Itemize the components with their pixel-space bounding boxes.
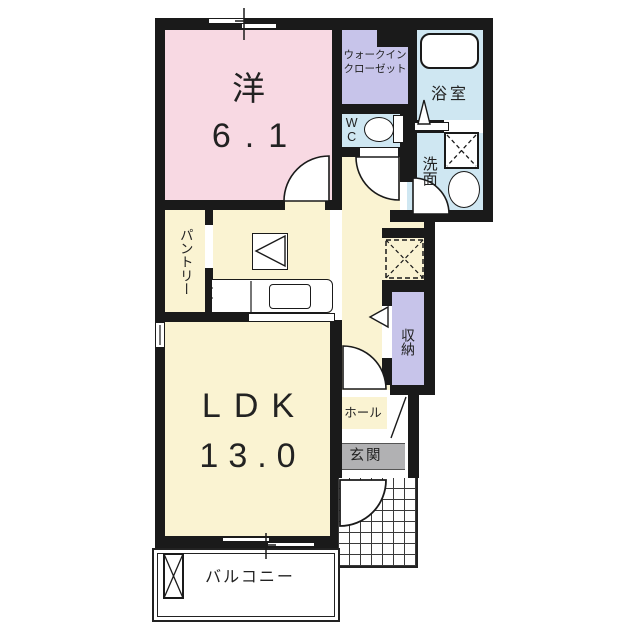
window-left	[156, 323, 164, 347]
wall-western-bottom	[155, 200, 285, 210]
ldk-size: 13.0	[170, 436, 335, 478]
bath-entry-sill	[414, 122, 449, 131]
storage-door-opening	[382, 306, 392, 358]
washroom-doorway	[407, 182, 417, 210]
window-top-rail-left	[208, 18, 245, 24]
bath-label: 浴室	[417, 84, 483, 106]
kitchen-counter-edge	[248, 313, 335, 322]
wall-western-bottom-stub	[325, 200, 342, 210]
wall-washroom-bottom	[390, 210, 493, 222]
window-balcony-rail-left	[222, 537, 270, 542]
western-room-size: 6.1	[173, 116, 340, 158]
toilet-door-opening	[360, 148, 398, 157]
walk-in-closet-label-line2: クローゼット	[342, 62, 408, 76]
window-balcony-rail-right	[267, 542, 315, 547]
balcony-label: バルコニー	[190, 567, 310, 589]
wall-bath-left	[408, 30, 417, 104]
wall-pantry-bottom	[155, 312, 213, 322]
floor-plan: 洋 6.1 ウォークイン クローゼット 浴室 WC 洗面 パントリー LDK 1…	[0, 0, 640, 640]
washroom-label: 洗面	[419, 145, 439, 197]
entrance-porch-tiles	[338, 478, 418, 568]
wall-entry-right	[408, 395, 419, 478]
pantry-door-opening	[205, 225, 213, 268]
wall-closet-pillar	[377, 30, 408, 47]
bathtub	[420, 33, 479, 69]
toilet-label: WC	[343, 112, 360, 148]
storage-label: 収納	[396, 322, 420, 362]
entrance-label: 玄関	[338, 446, 394, 467]
kitchen-sink	[269, 284, 311, 309]
wall-right-upper	[483, 18, 493, 222]
toilet-bowl	[364, 117, 394, 142]
western-room-label: 洋	[165, 68, 332, 110]
corridor-wc-floor	[342, 157, 400, 210]
window-top-rail-right	[241, 23, 277, 29]
washer-space	[444, 132, 479, 169]
entrance-door-opening	[338, 470, 405, 478]
washbasin	[448, 171, 480, 208]
toilet-tank	[393, 115, 404, 143]
hall-label: ホール	[339, 403, 387, 423]
shoe-cabinet	[389, 396, 408, 440]
wall-storage-bottom	[390, 385, 435, 395]
balcony-utility-box	[163, 553, 184, 599]
wall-right-mid	[424, 222, 435, 395]
western-door-opening	[285, 200, 325, 210]
refrigerator-space	[252, 233, 288, 270]
western-room-floor	[165, 30, 332, 200]
ldk-label: LDK	[172, 386, 337, 428]
wall-left	[155, 18, 165, 548]
wall-top	[155, 18, 493, 30]
walk-in-closet-label-line1: ウォークイン	[342, 48, 408, 62]
wall-western-right	[332, 18, 342, 210]
pantry-label: パントリー	[171, 216, 199, 308]
